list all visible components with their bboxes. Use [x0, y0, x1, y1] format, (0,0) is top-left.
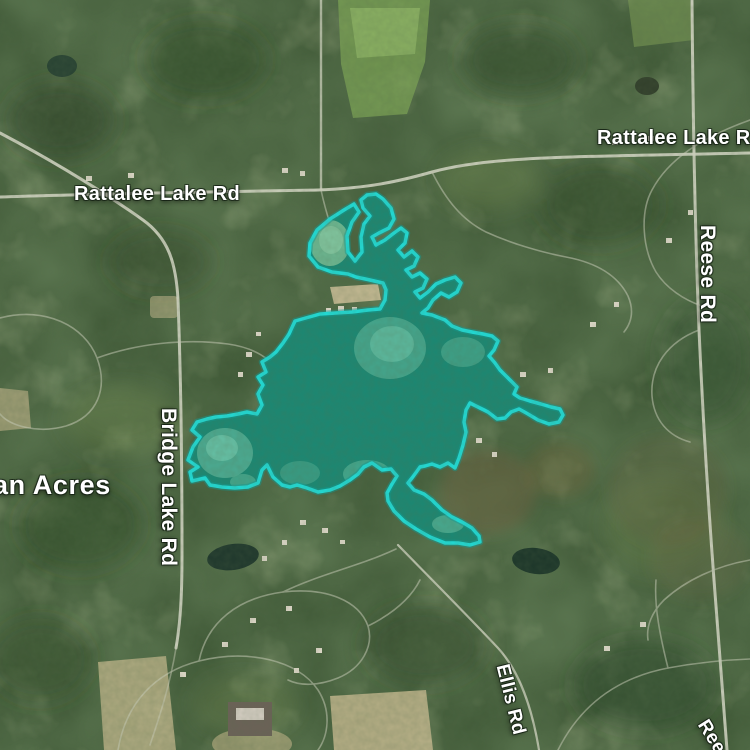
map-canvas: [0, 0, 750, 750]
grain-overlay: [0, 0, 750, 750]
place-label-acres: an Acres: [0, 470, 111, 501]
road-label-rattalee-lake-rd-west: Rattalee Lake Rd: [74, 183, 240, 206]
road-label-rattalee-lake-rd-east: Rattalee Lake Rd: [597, 127, 750, 150]
satellite-map[interactable]: Rattalee Lake Rd Rattalee Lake Rd Reese …: [0, 0, 750, 750]
road-label-reese-rd: Reese Rd: [695, 225, 719, 323]
road-label-bridge-lake-rd: Bridge Lake Rd: [156, 408, 180, 566]
